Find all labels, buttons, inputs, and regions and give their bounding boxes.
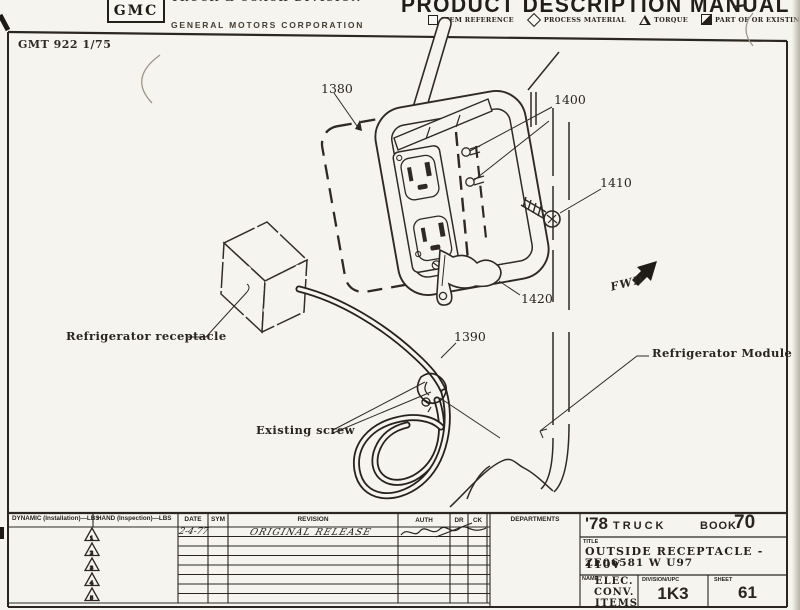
sheet-title-line2: ZE06581 W U97 — [585, 557, 693, 569]
scanned-manual-page: GMC TRUCK & COACH DIVISION GENERAL MOTOR… — [0, 0, 800, 610]
triangle-number: 1 — [90, 536, 93, 542]
cable-harness — [299, 289, 447, 496]
auth-header: AUTH — [398, 517, 450, 524]
refrigerator-receptacle-box — [221, 222, 307, 332]
name-value-line1: ELEC. — [595, 576, 634, 587]
hand-header: HAND (Inspection)—LBS — [97, 515, 172, 522]
book-label: BOOK — [700, 520, 737, 532]
name-value-line2: CONV. — [594, 587, 634, 598]
label-refrigerator-receptacle: Refrigerator receptacle — [66, 329, 227, 343]
departments-header: DEPARTMENTS — [490, 516, 580, 523]
approval-signature-scrawl — [401, 523, 486, 537]
triangle-number: 5 — [90, 596, 93, 602]
callout-1390: 1390 — [454, 329, 486, 344]
sheet-number: 61 — [708, 583, 787, 603]
label-refrigerator-module: Refrigerator Module — [652, 346, 792, 360]
callout-1420: 1420 — [521, 291, 553, 306]
label-existing-screw: Existing screw — [256, 423, 356, 437]
book-number: 70 — [734, 512, 755, 534]
dynamic-header: DYNAMIC (Installation)—LBS — [12, 515, 99, 522]
triangle-number: 3 — [90, 566, 93, 572]
label-fwd: FWD — [608, 273, 645, 294]
division-upc-value: 1K3 — [638, 584, 708, 604]
date-header: DATE — [178, 516, 208, 523]
revision-date-entry: 2-4-77 — [178, 527, 209, 537]
program-vehicle: TRUCK — [613, 520, 667, 532]
callout-1380: 1380 — [321, 81, 353, 96]
scan-edge-shading — [792, 0, 800, 610]
triangle-number: 2 — [90, 551, 93, 557]
name-value-line3: ITEMS — [595, 598, 638, 609]
program-year: '78 — [585, 514, 608, 534]
dr-header: DR — [450, 517, 468, 524]
triangle-number: 4 — [90, 581, 93, 587]
revision-entry: ORIGINAL RELEASE — [248, 527, 373, 538]
callout-1400: 1400 — [554, 92, 586, 107]
outlet-socket-top — [400, 154, 441, 201]
revision-header: REVISION — [228, 516, 398, 523]
revision-triangles: 1 2 3 4 5 — [85, 528, 99, 602]
division-upc-label: DIVISION/UPC — [642, 577, 679, 583]
ck-header: CK — [468, 517, 487, 524]
callout-1410: 1410 — [600, 175, 632, 190]
sym-header: SYM — [208, 516, 228, 523]
